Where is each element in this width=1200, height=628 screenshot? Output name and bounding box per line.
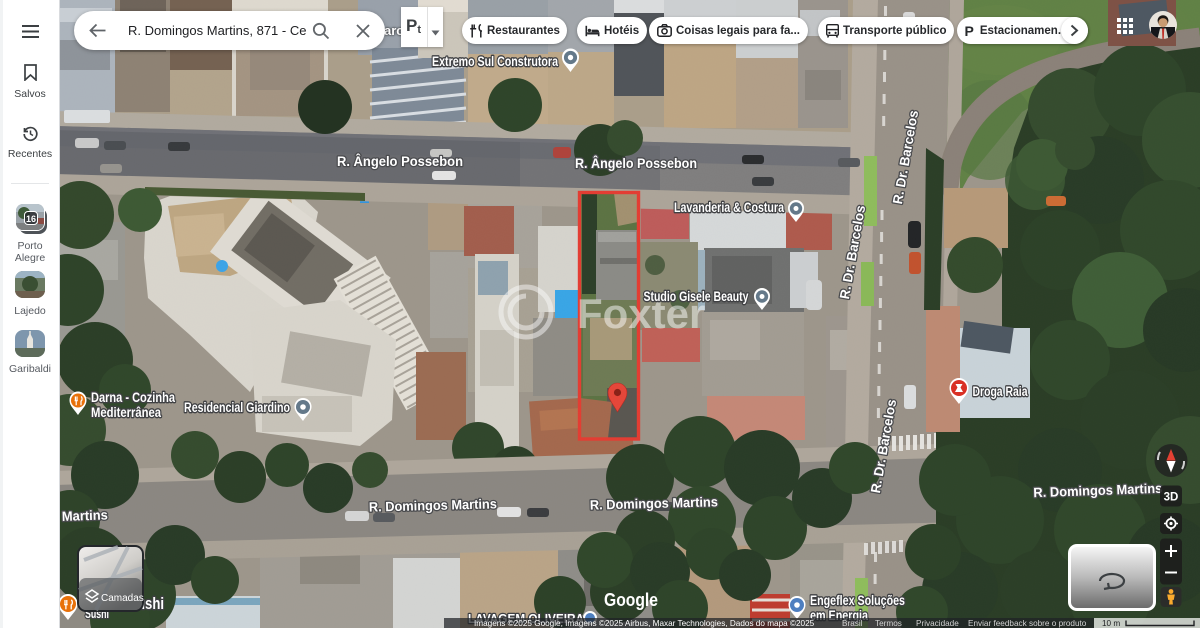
svg-text:Camadas: Camadas bbox=[101, 593, 144, 604]
svg-text:Darna - Cozinha: Darna - Cozinha bbox=[91, 390, 175, 405]
svg-text:R. Ângelo Possebon: R. Ângelo Possebon bbox=[575, 156, 697, 171]
svg-text:Brasil: Brasil bbox=[842, 619, 863, 628]
svg-text:Lavanderia & Costura: Lavanderia & Costura bbox=[674, 200, 784, 215]
svg-text:Droga Raia: Droga Raia bbox=[973, 384, 1028, 399]
svg-text:Privacidade: Privacidade bbox=[916, 619, 959, 628]
svg-text:Extremo Sul Construtora: Extremo Sul Construtora bbox=[432, 54, 558, 69]
svg-text:10 m: 10 m bbox=[1102, 619, 1120, 628]
svg-text:Google: Google bbox=[604, 589, 658, 610]
svg-text:Enviar feedback sobre o produt: Enviar feedback sobre o produto bbox=[968, 619, 1087, 628]
svg-text:Martins: Martins bbox=[62, 507, 108, 524]
svg-text:Studio Gisele Beauty: Studio Gisele Beauty bbox=[644, 289, 749, 304]
svg-text:Engeflex Soluções: Engeflex Soluções bbox=[810, 593, 905, 608]
svg-text:R. Ângelo Possebon: R. Ângelo Possebon bbox=[337, 154, 463, 169]
svg-text:Termos: Termos bbox=[875, 619, 902, 628]
svg-text:Mediterrânea: Mediterrânea bbox=[91, 405, 161, 420]
svg-text:Imagens ©2025 Google, Imagens: Imagens ©2025 Google, Imagens ©2025 Airb… bbox=[474, 619, 815, 628]
svg-text:Residencial Giardino: Residencial Giardino bbox=[184, 400, 290, 415]
svg-text:3D: 3D bbox=[1164, 492, 1179, 504]
